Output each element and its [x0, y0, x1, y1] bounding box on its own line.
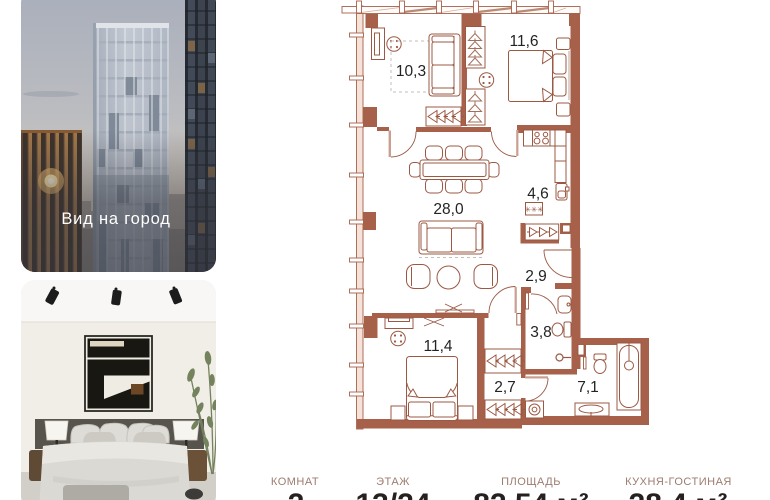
- svg-text:2,9: 2,9: [525, 268, 547, 285]
- svg-text:7,1: 7,1: [577, 379, 599, 396]
- svg-text:4,6: 4,6: [527, 186, 549, 203]
- svg-text:✳✳✳: ✳✳✳: [525, 205, 545, 214]
- svg-text:11,6: 11,6: [509, 33, 538, 50]
- svg-text:11,4: 11,4: [423, 338, 452, 355]
- svg-text:3,8: 3,8: [530, 324, 552, 341]
- svg-text:28,0: 28,0: [433, 201, 464, 218]
- svg-text:10,3: 10,3: [396, 63, 426, 80]
- svg-text:2,7: 2,7: [494, 379, 516, 396]
